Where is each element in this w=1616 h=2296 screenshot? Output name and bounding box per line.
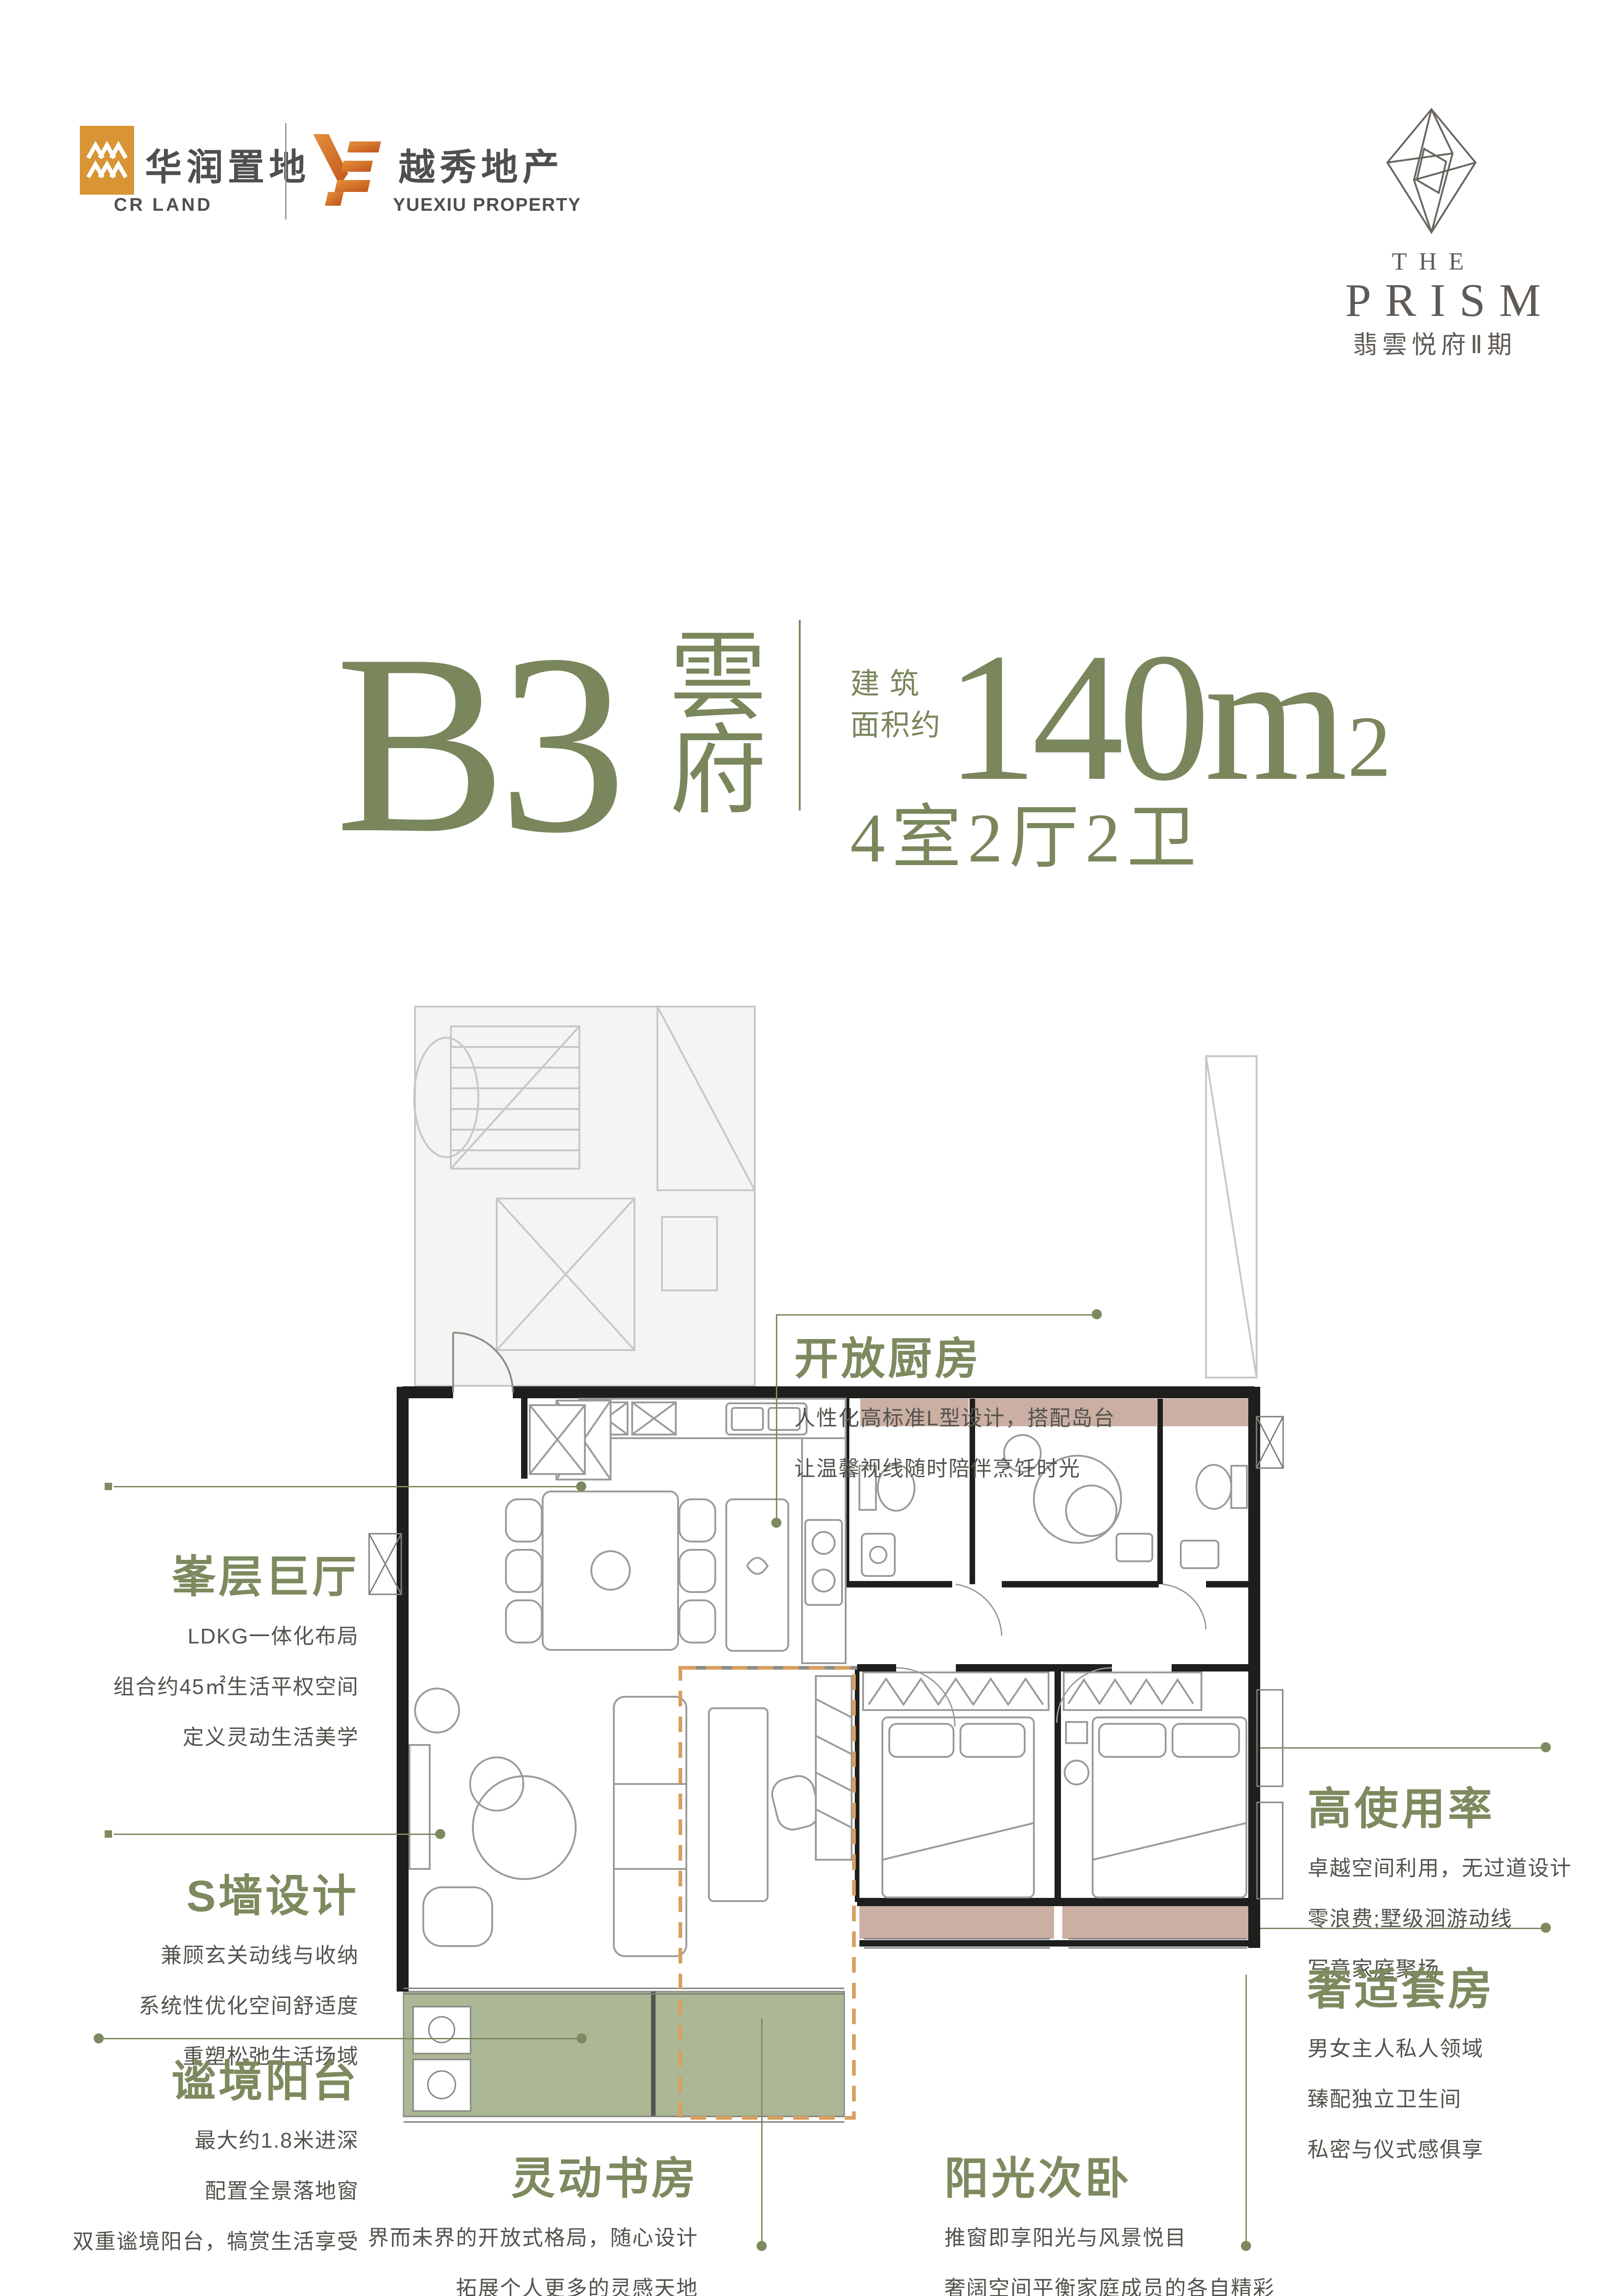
area-label-2: 面积约 bbox=[850, 702, 941, 744]
leader-efficiency bbox=[1260, 1747, 1546, 1749]
leader-efficiency-dot bbox=[1541, 1742, 1551, 1752]
unit-alias-1: 雲 bbox=[669, 628, 767, 728]
unit-layout: 4室2厅2卫 bbox=[850, 781, 1203, 882]
annotation-swall: S墙设计 兼顾玄关动线与收纳 系统性优化空间舒适度 重塑松弛生活场域 bbox=[0, 1871, 359, 2082]
prism-phase: 翡雲悦府Ⅱ期 bbox=[1345, 324, 1524, 360]
area-value-wrap: 140m2 bbox=[946, 639, 1391, 795]
crland-logo-icon bbox=[80, 126, 134, 195]
leader-kitchen-v bbox=[776, 1314, 777, 1523]
leader-study bbox=[761, 2018, 763, 2247]
prism-the: THE bbox=[1367, 247, 1500, 276]
unit-alias-2: 府 bbox=[669, 722, 767, 822]
floor-plan bbox=[359, 1001, 1286, 2135]
annotation-suite: 奢适套房 男女主人私人领域 臻配独立卫生间 私密与仪式感俱享 bbox=[1307, 1964, 1495, 2175]
leader-living bbox=[114, 1486, 581, 1487]
leader-living-dot bbox=[576, 1481, 586, 1491]
prism-name: PRISM bbox=[1345, 274, 1524, 327]
floorplan-poster: 华润置地 CR LAND 越秀地产 YUEXIU PROPERTY bbox=[0, 0, 1616, 2296]
prism-diamond-icon bbox=[1386, 107, 1477, 235]
title-divider bbox=[799, 620, 801, 810]
area-unit: m bbox=[1205, 615, 1347, 819]
crland-sub: CR LAND bbox=[114, 195, 213, 215]
leader-living-marker bbox=[105, 1483, 112, 1490]
area-label-1: 建 筑 bbox=[850, 660, 920, 703]
yuexiu-sub: YUEXIU PROPERTY bbox=[393, 195, 581, 215]
annotation-efficiency: 高使用率 卓越空间利用，无过道设计 零浪费;墅级洄游动线 写意家庭聚场 bbox=[1307, 1784, 1572, 1994]
core-stairwell bbox=[414, 1007, 1257, 1386]
annotation-kitchen: 开放厨房 人性化高标准L型设计，搭配岛台 让温馨视线随时陪伴烹饪时光 bbox=[794, 1334, 1116, 1494]
bedroom-master bbox=[1057, 1668, 1246, 1897]
logo-divider bbox=[285, 123, 286, 219]
bathroom-ensuite bbox=[1181, 1465, 1247, 1568]
annotation-living: 峯层巨厅 LDKG一体化布局 组合约45㎡生活平权空间 定义灵动生活美学 bbox=[0, 1552, 359, 1762]
bedroom-second bbox=[863, 1668, 1049, 1897]
annotation-bedroom: 阳光次卧 推窗即享阳光与风景悦目 奢阔空间平衡家庭成员的各自精彩 bbox=[944, 2154, 1275, 2296]
leader-swall bbox=[114, 1834, 441, 1835]
leader-kitchen-dot2 bbox=[771, 1518, 781, 1528]
leader-swall-marker bbox=[105, 1830, 112, 1838]
entry-closet bbox=[530, 1405, 585, 1474]
yuexiu-logo-icon bbox=[310, 129, 384, 210]
yuexiu-name: 越秀地产 bbox=[398, 138, 564, 191]
study bbox=[709, 1676, 852, 1901]
dining bbox=[506, 1491, 788, 1651]
living-room bbox=[410, 1688, 686, 1956]
leader-swall-dot bbox=[435, 1829, 445, 1839]
leader-balcony-dot bbox=[577, 2033, 587, 2043]
area-sup: 2 bbox=[1347, 699, 1391, 795]
leader-study-dot bbox=[757, 2241, 767, 2251]
annotation-study: 灵动书房 界而未界的开放式格局，随心设计 拓展个人更多的灵感天地 bbox=[285, 2154, 698, 2296]
plan-half-area-balcony bbox=[404, 1992, 844, 2116]
leader-kitchen-h bbox=[776, 1314, 1097, 1316]
unit-code: B3 bbox=[335, 643, 619, 845]
leader-kitchen-dot bbox=[1092, 1309, 1102, 1319]
